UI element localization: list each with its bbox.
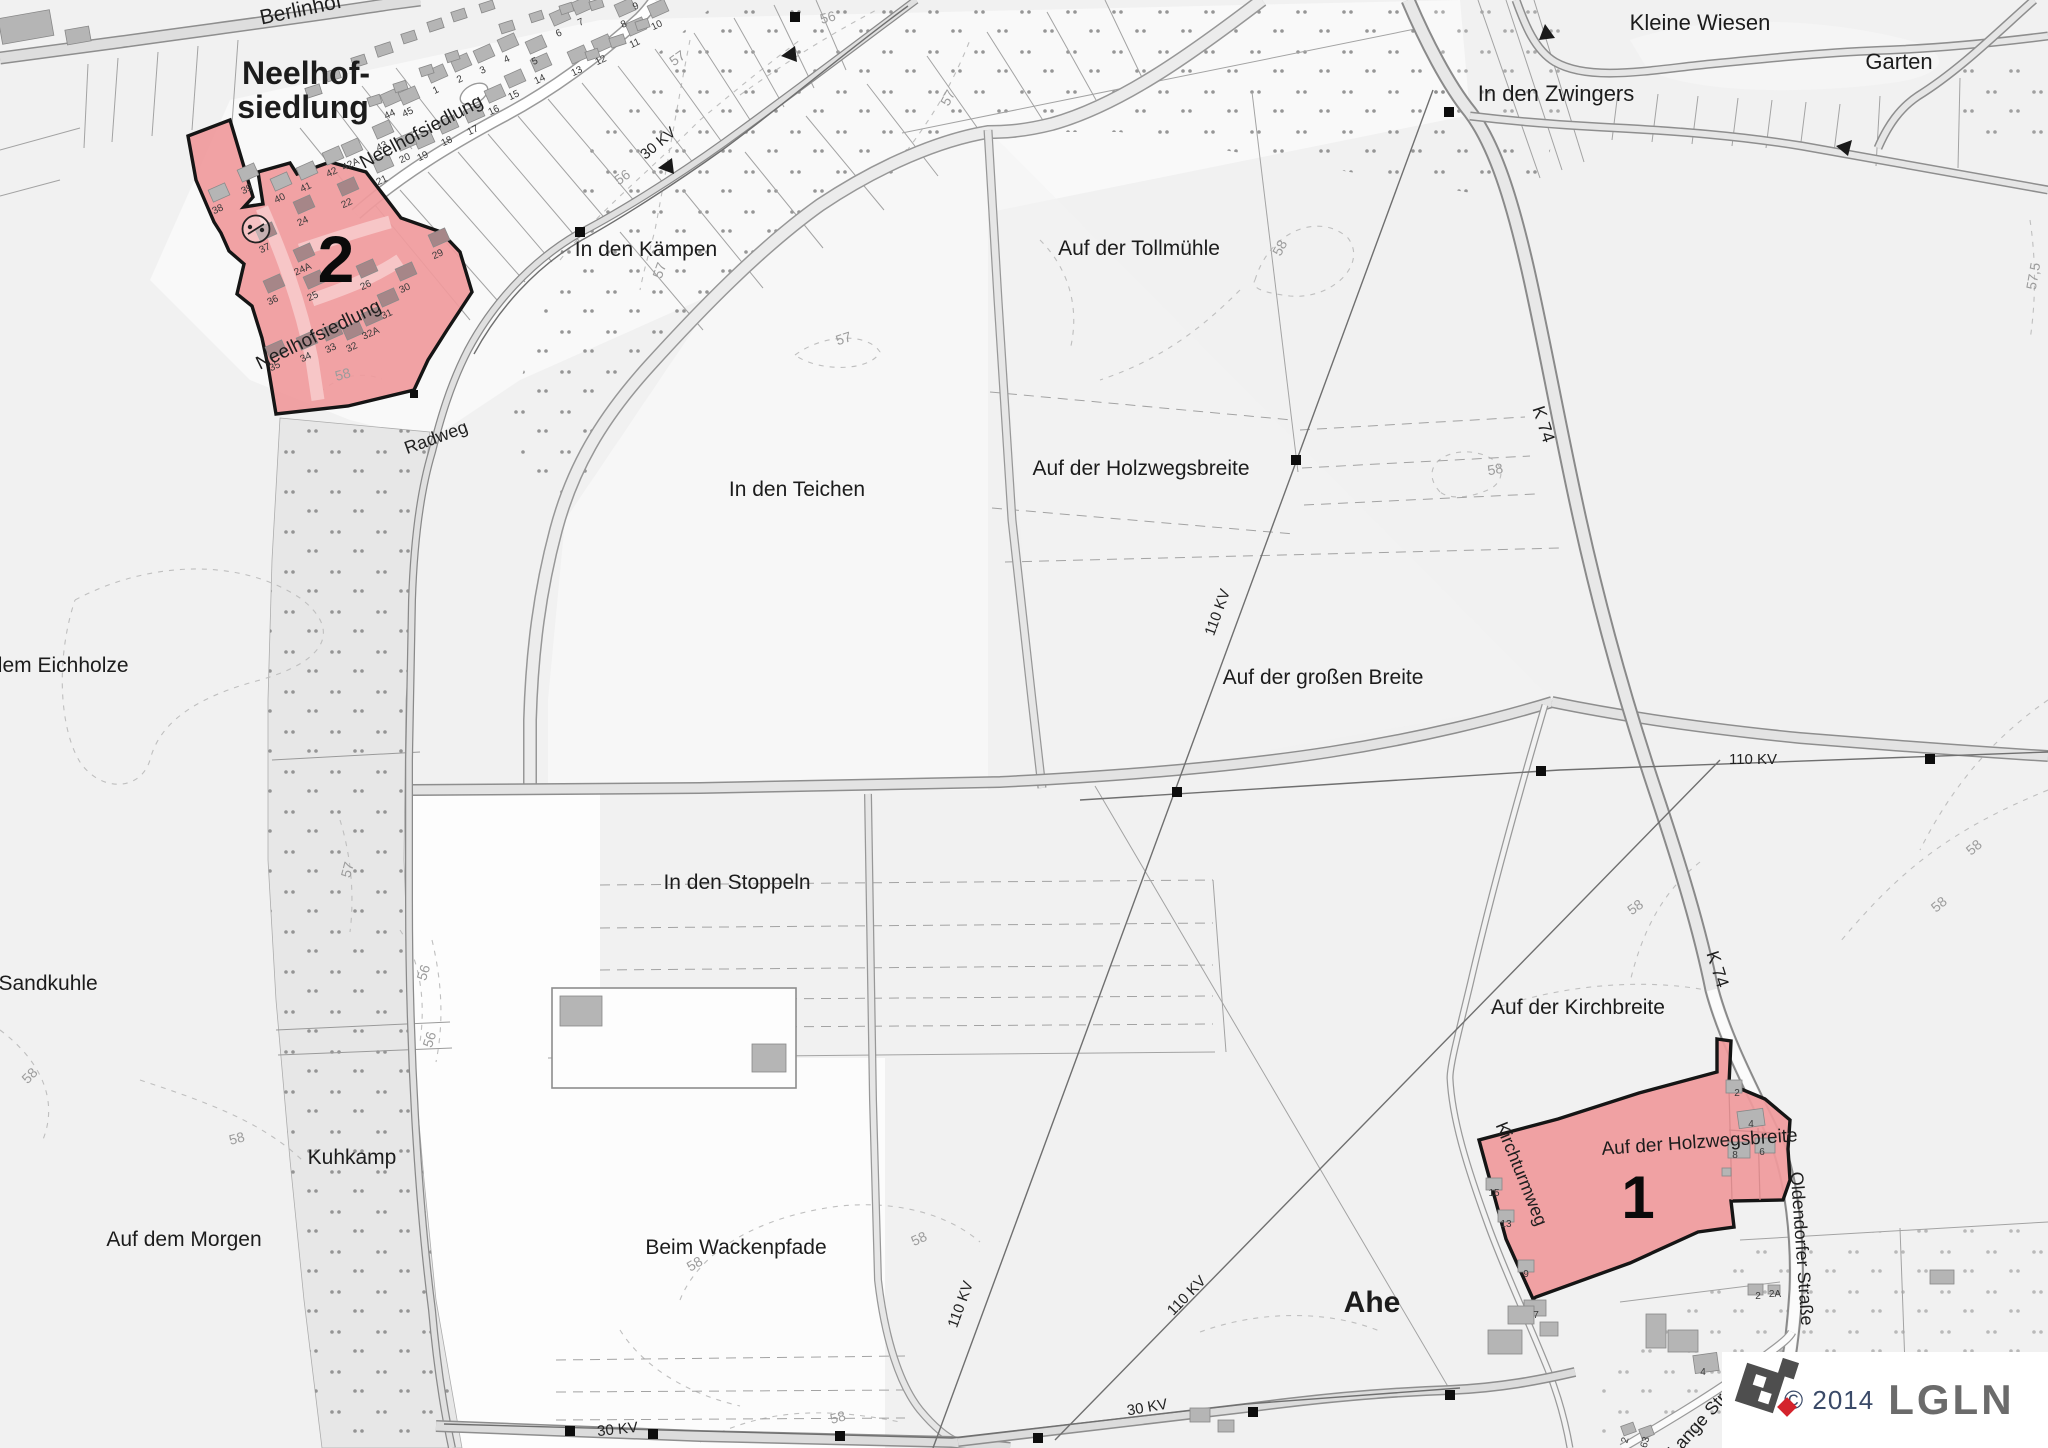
pylon-icon	[835, 1431, 845, 1441]
field-label: In den Zwingers	[1478, 81, 1635, 106]
pylon-icon	[1536, 766, 1546, 776]
field-label: Ahe	[1344, 1286, 1401, 1319]
field-label: In den Teichen	[729, 478, 865, 501]
contour-label: 58	[1486, 460, 1504, 478]
building	[1508, 1306, 1534, 1324]
house-number: 2A	[1769, 1289, 1782, 1300]
building	[1930, 1270, 1954, 1284]
house-number: 2	[1755, 1291, 1761, 1302]
building	[1540, 1322, 1558, 1336]
house-number: 15	[1488, 1188, 1500, 1199]
pylon-icon	[1248, 1407, 1258, 1417]
house-number: 13	[1500, 1219, 1512, 1230]
pylon-icon	[1291, 455, 1301, 465]
building	[1488, 1330, 1522, 1354]
field-label: Neelhof-	[242, 55, 370, 91]
field-label: der Sandkuhle	[0, 972, 98, 995]
field-label: Auf der Holzwegsbreite	[1032, 457, 1249, 480]
pylon-icon	[565, 1426, 575, 1436]
field-label: Kuhkamp	[308, 1146, 397, 1169]
field-label: Beim Wackenpfade	[645, 1236, 826, 1259]
field-label: In den Stoppeln	[663, 871, 810, 894]
building	[1722, 1168, 1731, 1176]
field-label: siedlung	[237, 89, 369, 125]
house-number: 4	[1748, 1119, 1754, 1130]
zone-number: 1	[1621, 1164, 1654, 1231]
building	[1190, 1408, 1210, 1422]
field-label: Auf der großen Breite	[1223, 666, 1424, 689]
map-canvas[interactable]: 56575756575857,5575858585756565858585858…	[0, 0, 2048, 1448]
pylon-icon	[1925, 754, 1935, 764]
building	[1218, 1420, 1234, 1432]
building	[752, 1044, 786, 1072]
power-label: 110 KV	[1729, 751, 1777, 768]
field-label: Auf dem Morgen	[106, 1228, 261, 1251]
field-label: Auf der Tollmühle	[1058, 237, 1220, 260]
pylon-icon	[1444, 107, 1454, 117]
building	[1646, 1314, 1666, 1348]
house-number: 7	[1533, 1310, 1539, 1321]
building	[560, 996, 602, 1026]
pylon-icon	[1172, 787, 1182, 797]
house-number: 2	[1734, 1088, 1740, 1099]
house-number: 4	[1700, 1367, 1706, 1378]
zone-number: 2	[318, 222, 355, 296]
building	[1693, 1352, 1719, 1373]
map-viewport[interactable]: 56575756575857,5575858585756565858585858…	[0, 0, 2048, 1448]
pylon-icon	[1033, 1433, 1043, 1443]
lgln-logo-icon	[1722, 1352, 1812, 1432]
house-number: 9	[1523, 1269, 1529, 1280]
pylon-icon	[648, 1429, 658, 1439]
field-label: Garten	[1865, 49, 1932, 74]
pylon-icon	[790, 12, 800, 22]
playground-icon	[243, 216, 270, 243]
field-label: Auf der Kirchbreite	[1491, 996, 1665, 1019]
house-number: 8	[1732, 1150, 1738, 1161]
field-label: Kleine Wiesen	[1630, 10, 1771, 35]
pylon-icon	[1445, 1390, 1455, 1400]
house-number: 6	[1759, 1147, 1765, 1158]
lgln-legend: © 2014 LGLN	[1722, 1352, 2048, 1448]
boundary-marker-icon	[410, 390, 418, 398]
pylon-icon	[575, 227, 585, 237]
building	[1668, 1330, 1698, 1352]
field-label: In dem Eichholze	[0, 654, 129, 677]
lgln-brand-text: LGLN	[1888, 1376, 2014, 1424]
field-label: In den Kämpen	[575, 238, 717, 261]
